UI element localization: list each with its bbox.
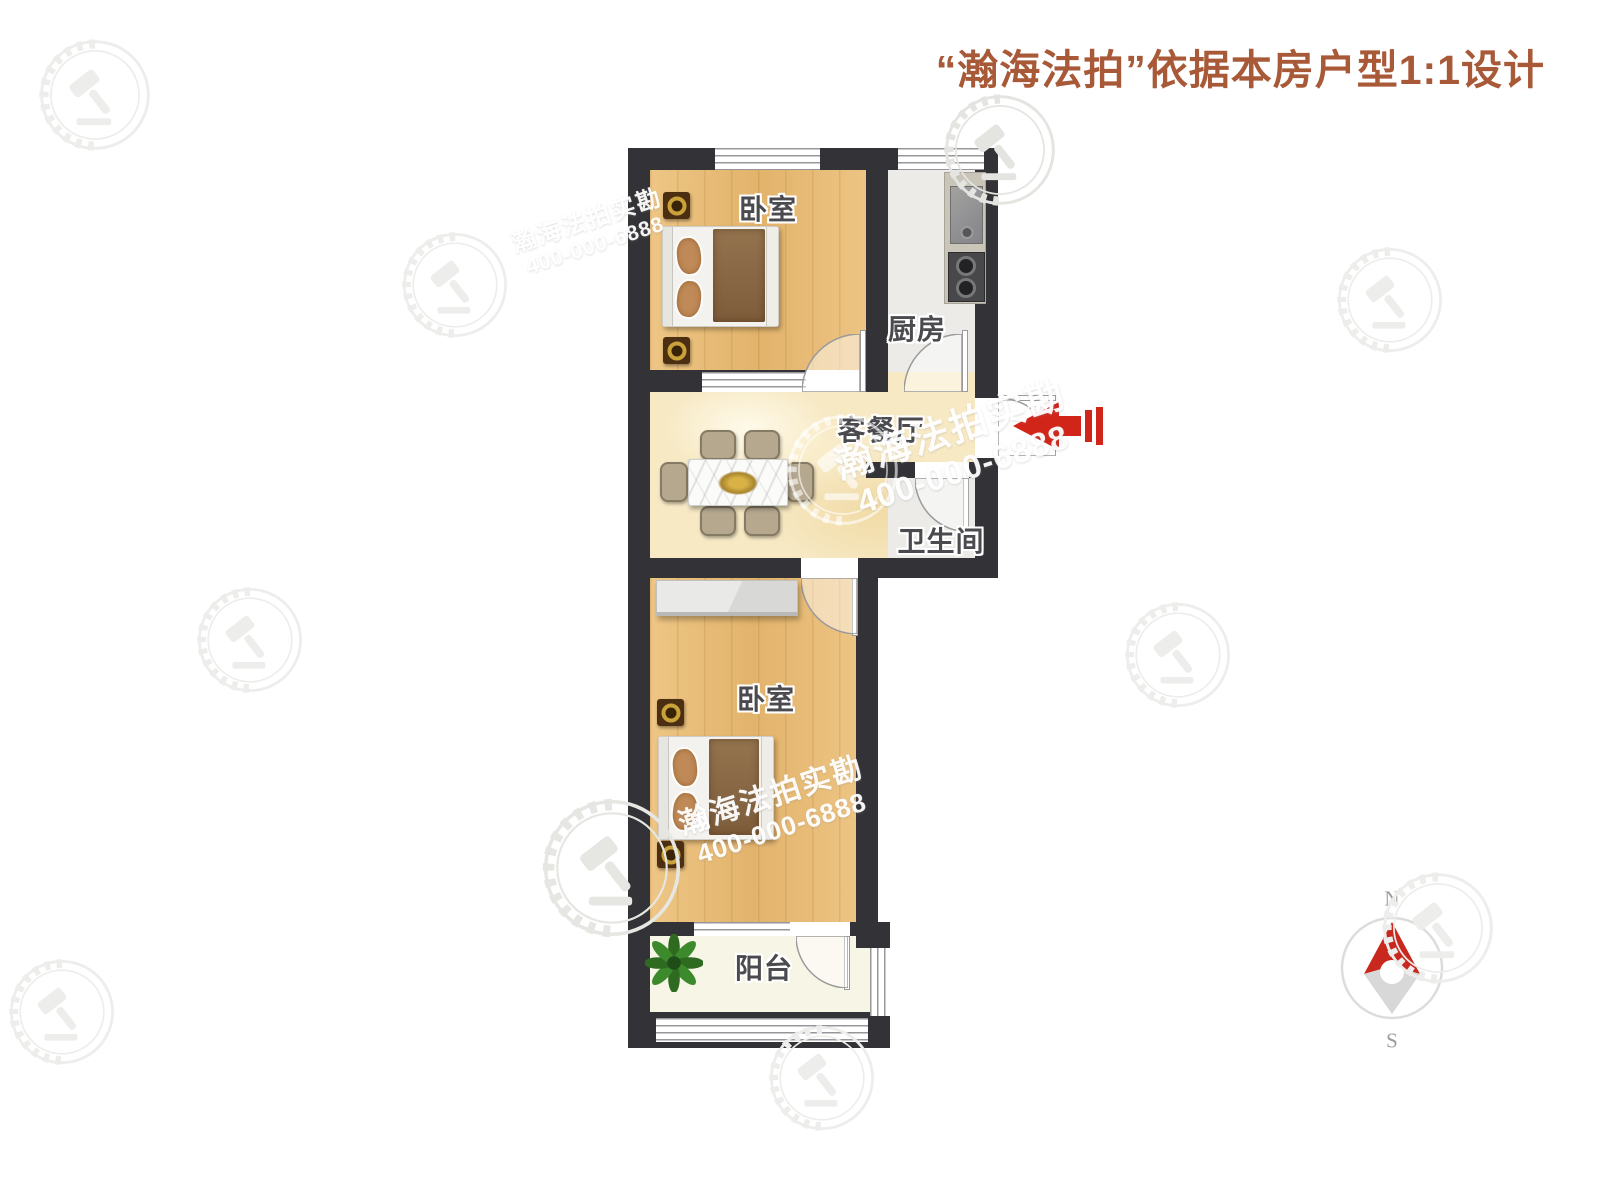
bed-headboard (663, 227, 673, 326)
compass-south-label: S (1386, 1029, 1398, 1054)
wall-kitchen-divider (866, 170, 888, 392)
door-leaf-kitchen (962, 330, 968, 392)
blanket-icon (713, 229, 765, 322)
watermark-logo-icon (942, 92, 1058, 208)
door-arc-bedroom-bottom (801, 578, 857, 634)
bed-icon (662, 226, 779, 327)
room-label-balcony: 阳台 (735, 947, 793, 987)
wardrobe-icon (656, 580, 798, 616)
chair-icon (700, 430, 736, 460)
room-label-bedroom-bottom: 卧室 (737, 678, 795, 718)
nightstand-icon (663, 337, 690, 364)
page-title: “瀚海法拍”依据本房户型1:1设计 (936, 36, 1545, 96)
door-opening-balcony (790, 922, 850, 936)
room-label-kitchen: 厨房 (888, 308, 946, 348)
wall-bathroom-south (866, 558, 998, 578)
window-bedroom-top-interior (702, 372, 806, 392)
door-leaf-bedroom-top (860, 330, 866, 392)
watermark-logo-icon (195, 585, 305, 695)
chair-icon (744, 430, 780, 460)
pillow-icon (669, 746, 701, 790)
chair-icon (744, 506, 780, 536)
nightstand-icon (657, 699, 684, 726)
watermark-logo-icon (7, 957, 117, 1067)
window-balcony-east (870, 948, 890, 1016)
dining-table-icon (688, 459, 788, 506)
watermark-logo-icon (767, 1023, 877, 1133)
watermark-logo-icon (1335, 245, 1445, 355)
door-arc-bedroom-top (802, 334, 860, 392)
door-arc-balcony (796, 936, 848, 988)
page: { "title": { "text": "“瀚海法拍”依据本房户型1:1设计"… (0, 0, 1600, 1200)
pillow-icon (673, 235, 705, 278)
plant-icon (645, 934, 703, 992)
chair-icon (700, 506, 736, 536)
pillow-icon (673, 278, 705, 321)
bed-footboard (766, 227, 778, 326)
wall-balcony-east-stub (856, 922, 890, 948)
door-opening-bedroom-bottom (801, 558, 858, 578)
window-bedroom-top (715, 148, 820, 170)
room-label-bedroom-top: 卧室 (739, 188, 797, 228)
stove-icon (948, 252, 985, 302)
watermark-logo-icon (1123, 600, 1233, 710)
room-label-bathroom: 卫生间 (897, 520, 984, 560)
watermark-logo-icon (1380, 870, 1496, 986)
window-bedroom-balcony (694, 922, 790, 936)
watermark-logo-icon (37, 37, 153, 153)
chair-icon (660, 462, 688, 502)
